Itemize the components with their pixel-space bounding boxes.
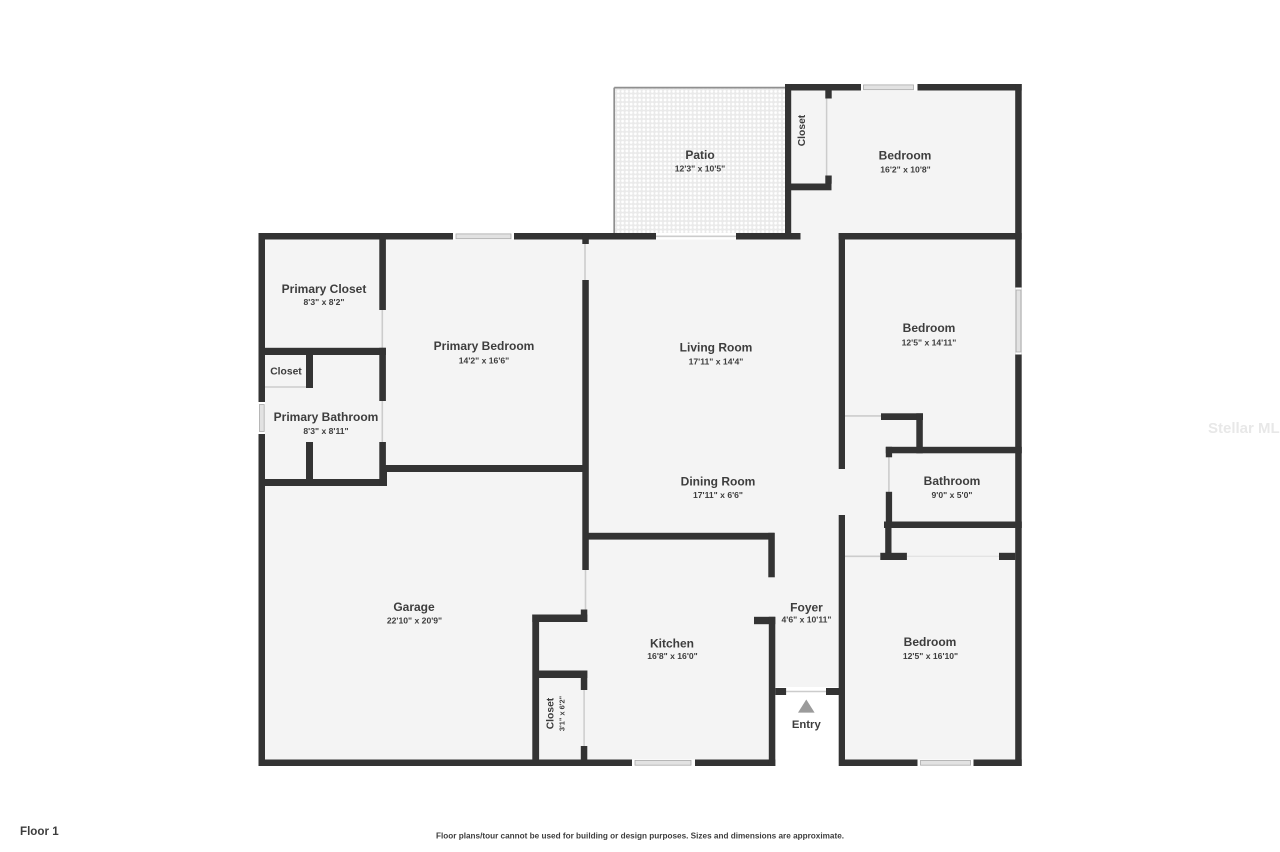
svg-text:16'2" x 10'8": 16'2" x 10'8" bbox=[880, 165, 930, 175]
svg-text:Living Room: Living Room bbox=[680, 341, 753, 355]
svg-text:17'11" x 6'6": 17'11" x 6'6" bbox=[693, 490, 743, 500]
svg-text:Floor plans/tour cannot be use: Floor plans/tour cannot be used for buil… bbox=[436, 832, 844, 841]
svg-text:8'3" x 8'11": 8'3" x 8'11" bbox=[303, 426, 348, 436]
svg-text:Closet: Closet bbox=[546, 697, 557, 729]
svg-text:Garage: Garage bbox=[393, 600, 435, 614]
svg-text:Primary Closet: Primary Closet bbox=[282, 282, 367, 296]
svg-text:Dining Room: Dining Room bbox=[681, 475, 756, 489]
svg-text:Floor 1: Floor 1 bbox=[20, 825, 59, 838]
svg-text:12'3" x 10'5": 12'3" x 10'5" bbox=[675, 164, 725, 174]
svg-text:Closet: Closet bbox=[797, 114, 808, 146]
svg-text:12'5" x 16'10": 12'5" x 16'10" bbox=[903, 651, 958, 661]
svg-text:Primary Bathroom: Primary Bathroom bbox=[274, 410, 379, 424]
svg-text:8'3" x 8'2": 8'3" x 8'2" bbox=[304, 297, 345, 307]
svg-text:12'5" x 14'11": 12'5" x 14'11" bbox=[902, 338, 957, 348]
svg-text:Foyer: Foyer bbox=[790, 601, 823, 615]
svg-text:3'1" x 6'2": 3'1" x 6'2" bbox=[558, 695, 567, 731]
svg-text:Primary Bedroom: Primary Bedroom bbox=[434, 339, 535, 353]
svg-text:Patio: Patio bbox=[685, 148, 714, 162]
svg-text:Closet: Closet bbox=[270, 367, 302, 378]
svg-text:Entry: Entry bbox=[792, 719, 822, 731]
svg-text:Bedroom: Bedroom bbox=[903, 321, 956, 335]
svg-text:17'11" x 14'4": 17'11" x 14'4" bbox=[689, 357, 744, 367]
svg-text:9'0" x 5'0": 9'0" x 5'0" bbox=[932, 490, 973, 500]
svg-text:Bedroom: Bedroom bbox=[904, 635, 957, 649]
svg-text:Stellar MLS: Stellar MLS bbox=[1208, 420, 1280, 437]
svg-text:Kitchen: Kitchen bbox=[650, 637, 694, 651]
svg-text:14'2" x 16'6": 14'2" x 16'6" bbox=[459, 356, 509, 366]
svg-text:4'6" x 10'11": 4'6" x 10'11" bbox=[782, 615, 832, 625]
svg-text:Bedroom: Bedroom bbox=[879, 149, 932, 163]
svg-text:22'10" x 20'9": 22'10" x 20'9" bbox=[387, 616, 442, 626]
svg-text:Bathroom: Bathroom bbox=[924, 474, 981, 488]
svg-text:16'8" x 16'0": 16'8" x 16'0" bbox=[647, 651, 697, 661]
